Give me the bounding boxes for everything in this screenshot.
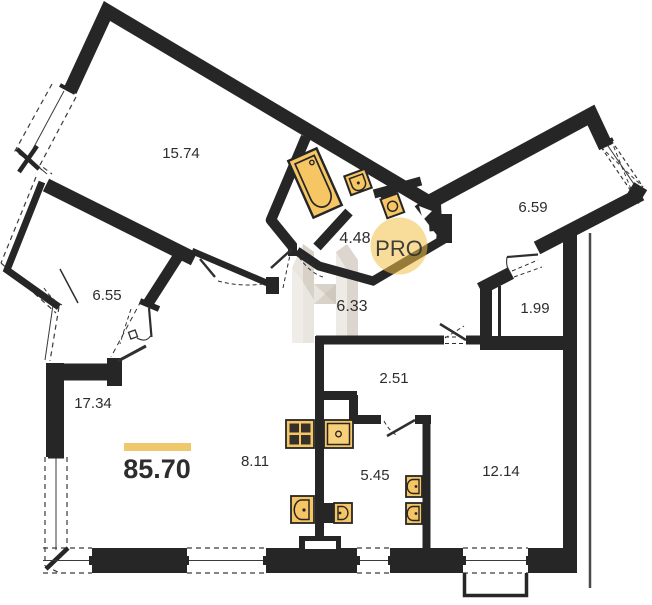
svg-text:85.70: 85.70 (123, 454, 191, 484)
svg-text:17.34: 17.34 (74, 395, 112, 412)
svg-text:12.14: 12.14 (482, 463, 520, 480)
svg-text:1.99: 1.99 (520, 300, 549, 317)
svg-text:6.55: 6.55 (92, 287, 121, 304)
svg-text:PRO: PRO (375, 236, 423, 261)
svg-text:6.33: 6.33 (336, 298, 367, 315)
svg-text:2.51: 2.51 (379, 370, 408, 387)
svg-text:6.59: 6.59 (518, 199, 547, 216)
svg-text:4.48: 4.48 (339, 230, 370, 247)
svg-text:15.74: 15.74 (162, 145, 200, 162)
svg-text:8.11: 8.11 (241, 453, 269, 470)
svg-text:5.45: 5.45 (360, 467, 389, 484)
